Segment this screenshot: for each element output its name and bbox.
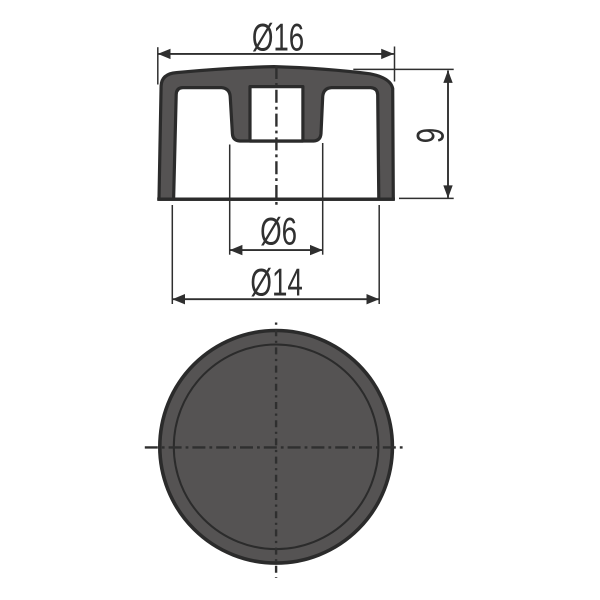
svg-text:Ø16: Ø16 bbox=[252, 17, 304, 59]
svg-text:9: 9 bbox=[410, 128, 452, 143]
svg-text:Ø14: Ø14 bbox=[250, 262, 302, 304]
svg-text:Ø6: Ø6 bbox=[260, 211, 297, 253]
